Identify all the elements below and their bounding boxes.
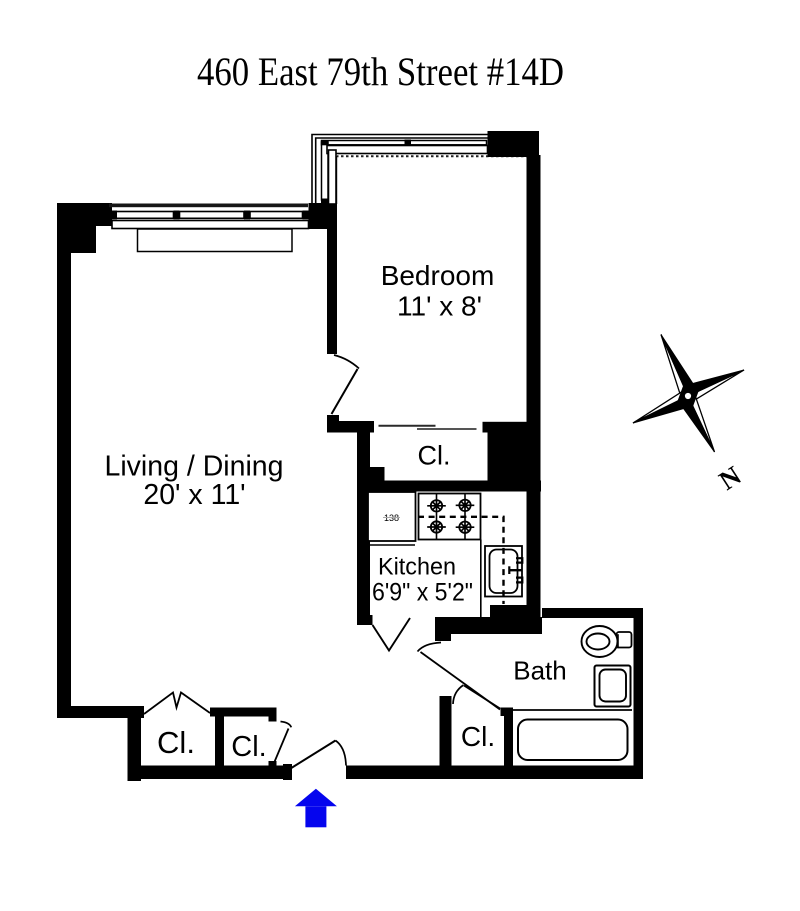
svg-text:Cl.: Cl. <box>157 725 195 760</box>
svg-text:Cl.: Cl. <box>461 721 495 752</box>
svg-text:20' x 11': 20' x 11' <box>143 479 245 511</box>
svg-text:460 East 79th Street #14D: 460 East 79th Street #14D <box>197 49 564 94</box>
svg-text:Bath: Bath <box>513 656 567 686</box>
svg-text:6'9" x 5'2": 6'9" x 5'2" <box>372 579 473 607</box>
svg-text:Cl.: Cl. <box>418 441 451 471</box>
svg-text:Bedroom: Bedroom <box>381 260 495 291</box>
svg-text:Kitchen: Kitchen <box>378 554 456 581</box>
svg-text:11' x 8': 11' x 8' <box>397 291 482 322</box>
svg-text:Living / Dining: Living / Dining <box>104 451 283 483</box>
svg-text:Cl.: Cl. <box>231 731 266 763</box>
svg-text:N: N <box>714 460 747 496</box>
